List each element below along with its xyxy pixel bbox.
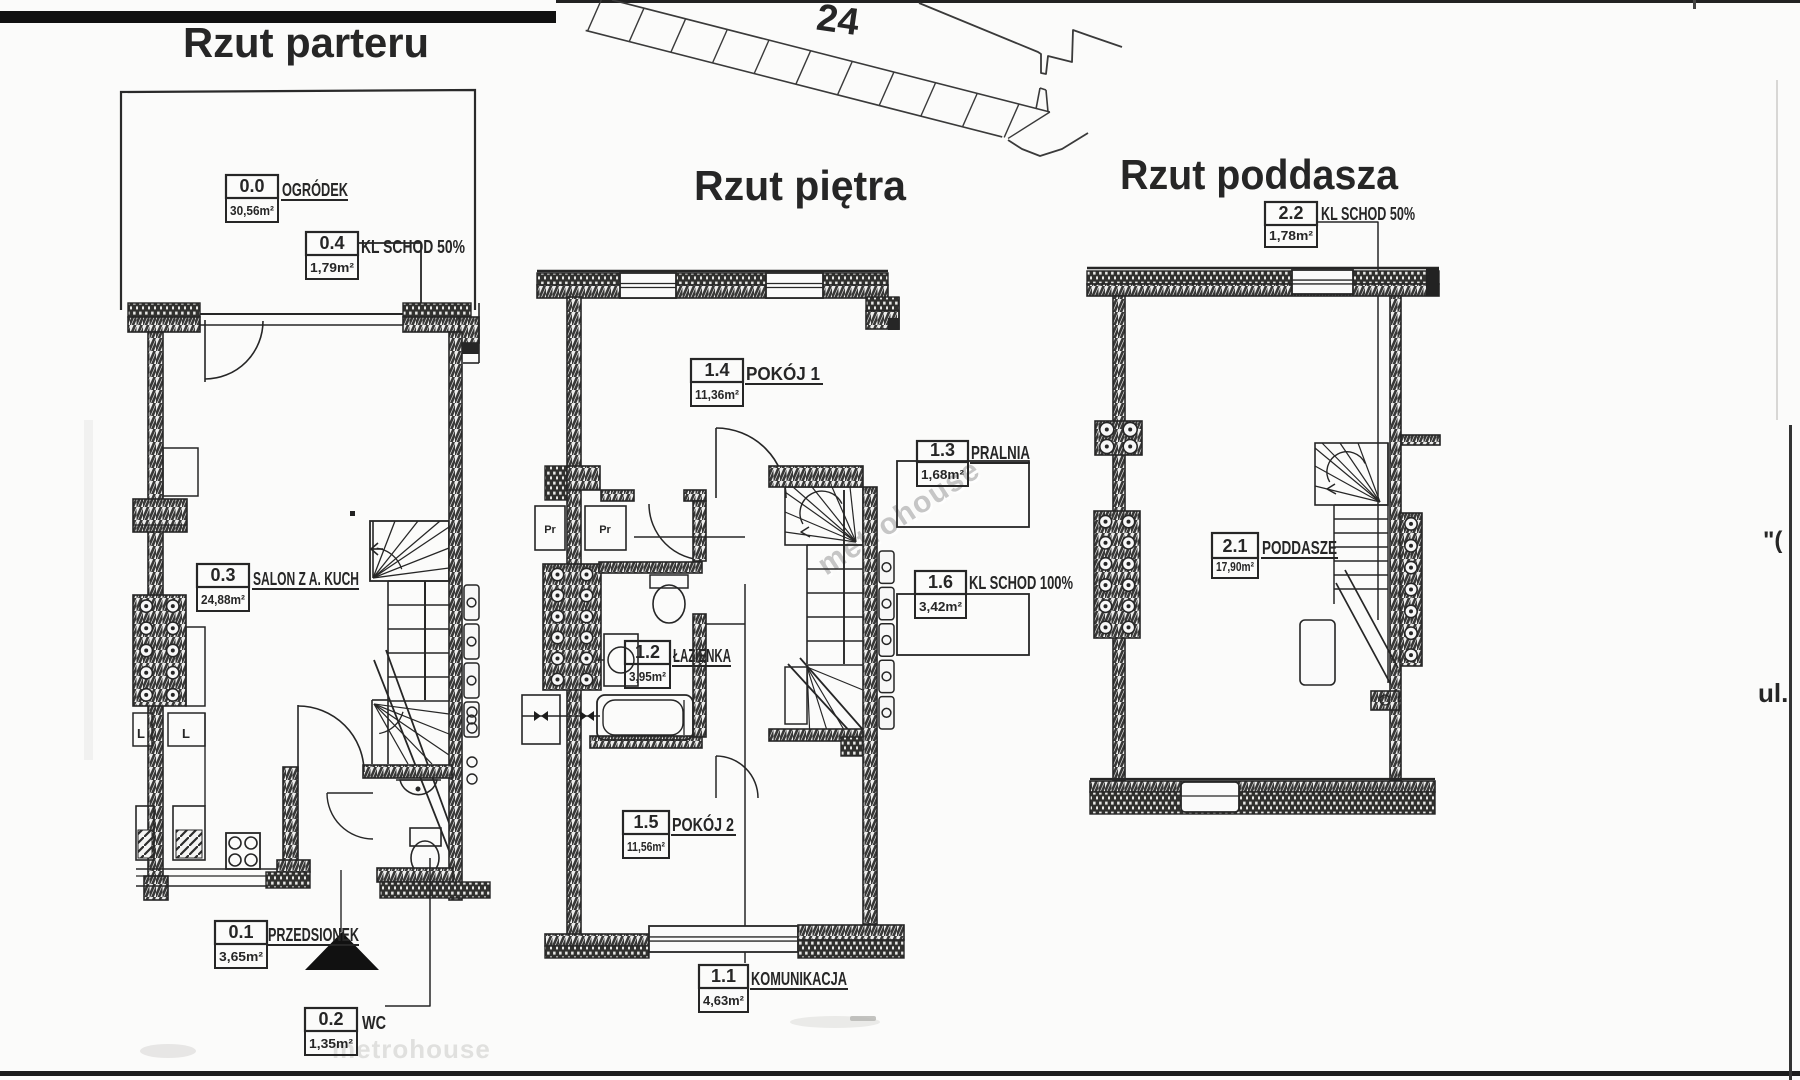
svg-text:1,78m²: 1,78m² [1269,229,1313,243]
svg-text:1,79m²: 1,79m² [310,261,354,275]
svg-text:KL SCHOD 50%: KL SCHOD 50% [1321,204,1415,224]
svg-text:L: L [182,726,190,741]
svg-text:PRALNIA: PRALNIA [971,443,1030,463]
svg-text:30,56m²: 30,56m² [230,204,274,218]
svg-text:Rzut poddasza: Rzut poddasza [1120,151,1399,198]
svg-text:PODDASZE: PODDASZE [1262,538,1337,558]
svg-text:1.1: 1.1 [711,966,736,986]
svg-text:WC: WC [362,1013,386,1033]
svg-text:1,35m²: 1,35m² [309,1037,353,1051]
svg-text:POKÓJ 2: POKÓJ 2 [672,814,734,835]
svg-text:3,95m²: 3,95m² [629,670,666,684]
svg-text:0.3: 0.3 [211,565,236,585]
svg-text:OGRÓDEK: OGRÓDEK [282,179,348,200]
svg-text:0.2: 0.2 [319,1009,344,1029]
svg-text:Rzut piętra: Rzut piętra [694,162,907,209]
svg-text:SALON Z A. KUCH: SALON Z A. KUCH [253,569,359,589]
svg-text:"(: "( [1763,527,1782,554]
svg-text:24: 24 [814,0,862,44]
svg-text:Pr: Pr [544,524,556,536]
svg-text:0.4: 0.4 [320,233,345,253]
svg-text:Rzut parteru: Rzut parteru [183,19,429,66]
svg-text:1.6: 1.6 [928,572,953,592]
svg-text:24,88m²: 24,88m² [201,593,245,607]
svg-text:ul.: ul. [1758,678,1788,708]
svg-text:KL SCHOD 50%: KL SCHOD 50% [361,237,465,257]
svg-text:3,42m²: 3,42m² [919,600,962,614]
svg-text:PRZEDSIONEK: PRZEDSIONEK [268,925,359,945]
svg-text:17,90m²: 17,90m² [1216,560,1254,574]
svg-text:KL SCHOD 100%: KL SCHOD 100% [969,573,1073,593]
svg-text:POKÓJ 1: POKÓJ 1 [746,363,820,384]
svg-text:1.5: 1.5 [634,812,659,832]
svg-text:3,65m²: 3,65m² [219,950,263,964]
svg-text:2.2: 2.2 [1279,203,1304,223]
svg-text:0.0: 0.0 [240,176,265,196]
svg-text:1.2: 1.2 [635,642,660,662]
svg-text:11,56m²: 11,56m² [627,840,665,854]
svg-text:1.3: 1.3 [930,440,955,460]
svg-text:0.1: 0.1 [229,922,254,942]
svg-text:metrohouse: metrohouse [332,1034,491,1064]
svg-text:ŁAZIENKA: ŁAZIENKA [673,646,731,666]
svg-text:11,36m²: 11,36m² [695,388,739,402]
svg-text:Pr: Pr [599,524,611,536]
svg-text:L: L [137,726,145,741]
svg-text:1.4: 1.4 [705,360,730,380]
svg-text:KOMUNIKACJA: KOMUNIKACJA [751,969,847,989]
svg-text:1,68m²: 1,68m² [921,468,964,482]
svg-text:4,63m²: 4,63m² [703,994,744,1008]
svg-text:2.1: 2.1 [1223,536,1248,556]
